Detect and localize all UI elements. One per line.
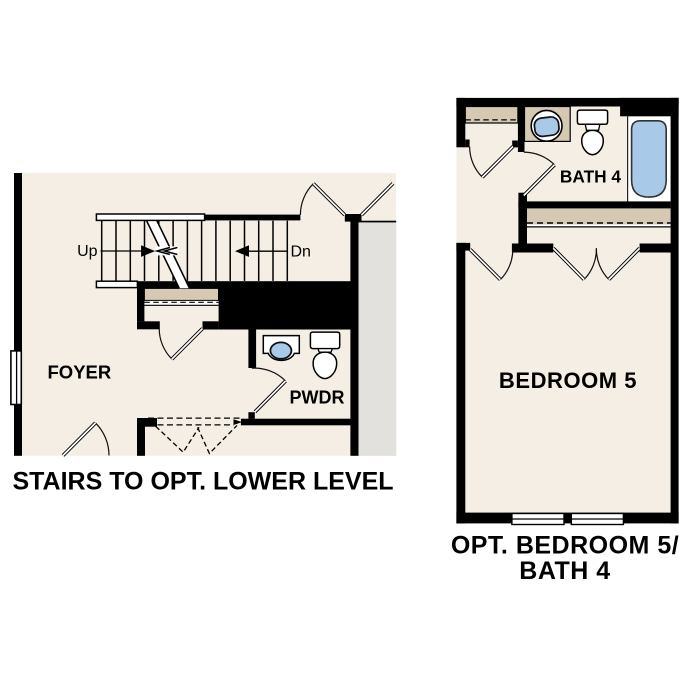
svg-text:PWDR: PWDR — [290, 388, 345, 408]
svg-text:BATH 4: BATH 4 — [560, 167, 622, 187]
svg-text:BEDROOM 5: BEDROOM 5 — [499, 368, 637, 393]
svg-text:Dn: Dn — [290, 244, 310, 261]
svg-text:BATH 4: BATH 4 — [519, 557, 610, 585]
svg-text:OPT. BEDROOM 5/: OPT. BEDROOM 5/ — [451, 532, 679, 560]
svg-text:STAIRS TO OPT. LOWER LEVEL: STAIRS TO OPT. LOWER LEVEL — [12, 468, 393, 496]
svg-text:Up: Up — [77, 243, 98, 260]
svg-text:FOYER: FOYER — [48, 361, 112, 382]
